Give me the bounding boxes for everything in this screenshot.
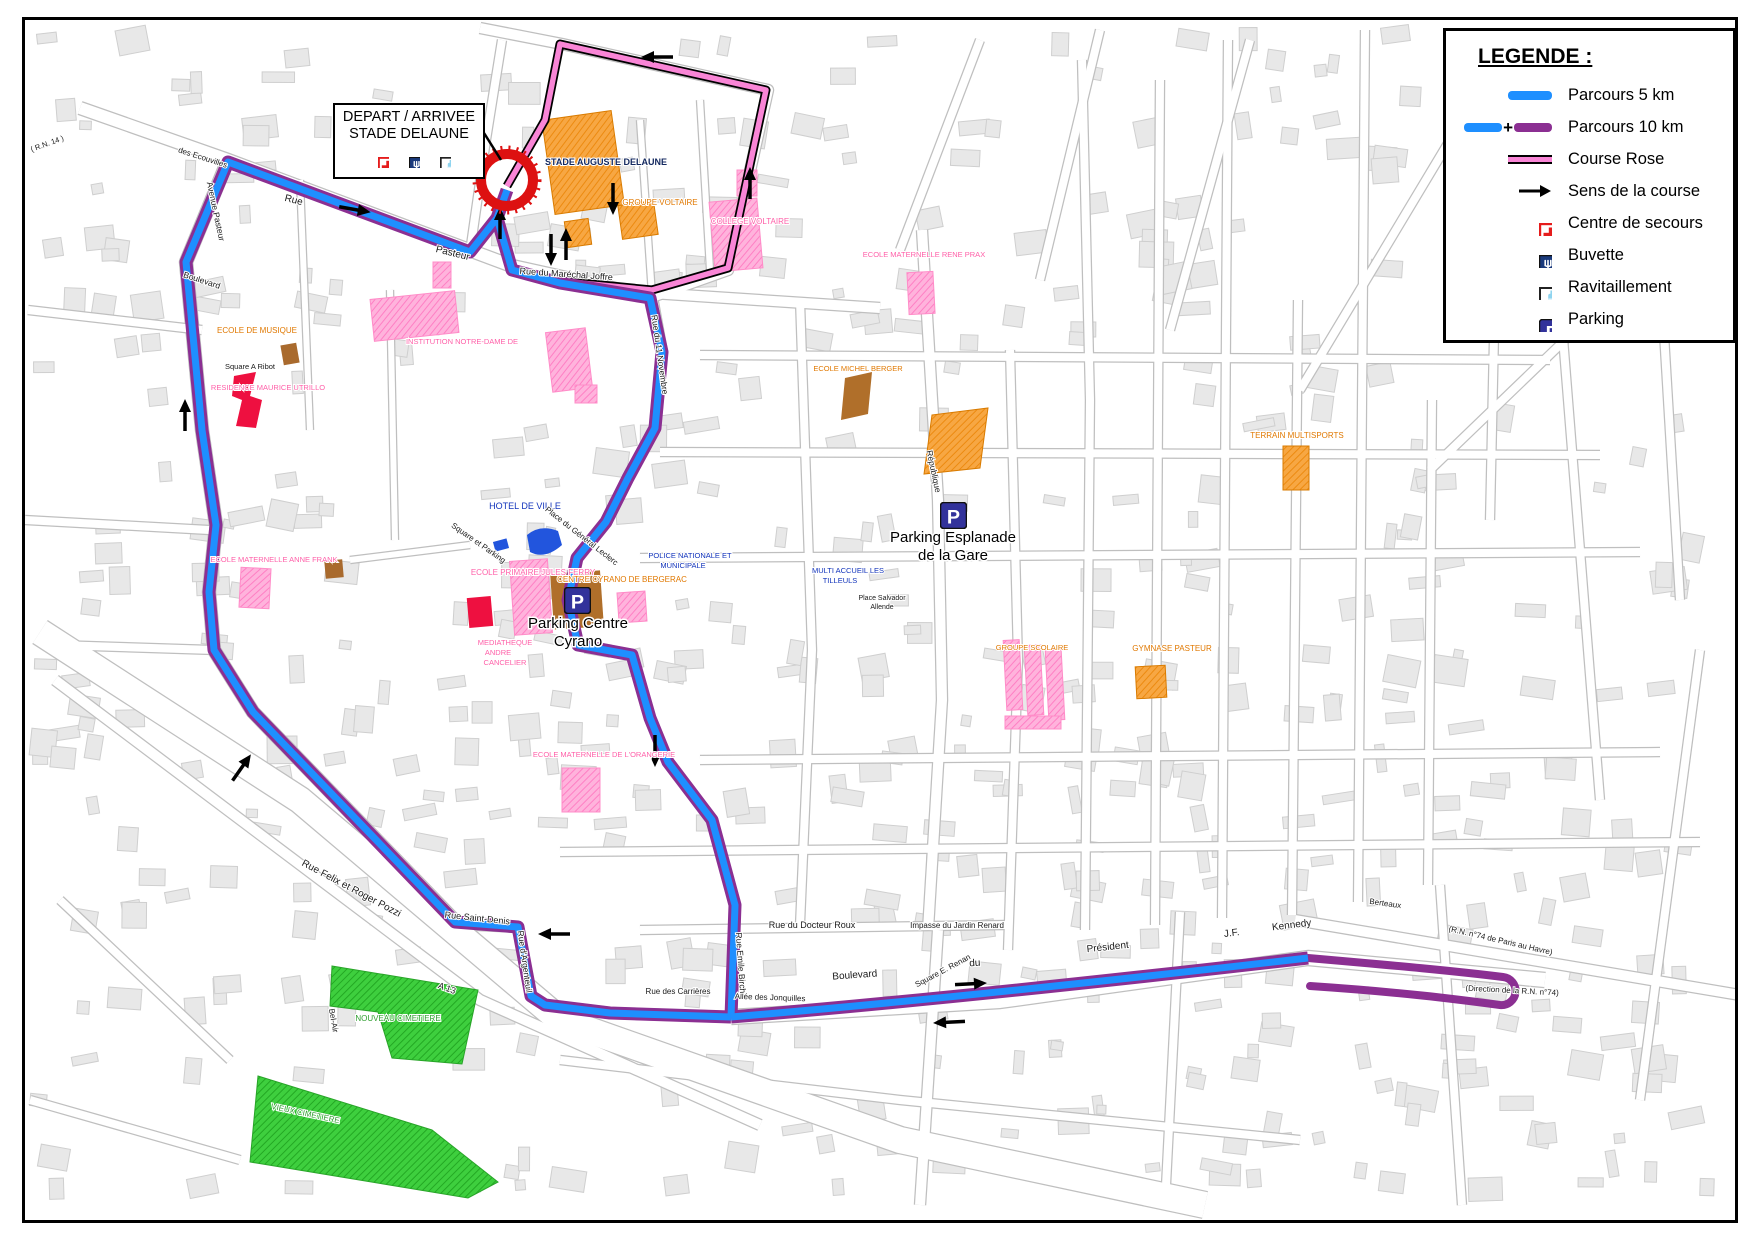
city-block	[635, 790, 661, 811]
legend-item-parcours-5km: Parcours 5 km	[1446, 79, 1733, 111]
map-label: ECOLE MATERNELLE DE L'ORANGERIE	[533, 750, 675, 759]
city-block	[107, 987, 142, 1010]
street	[1170, 40, 1250, 330]
city-block	[354, 706, 375, 733]
city-block	[864, 889, 900, 910]
city-block	[339, 640, 352, 650]
city-block	[1604, 845, 1634, 872]
city-block	[1270, 86, 1281, 102]
city-block	[1052, 33, 1069, 57]
gymnase-building	[1135, 665, 1167, 699]
city-block	[329, 279, 342, 295]
legend-item-ravitaillement: Ravitaillement	[1446, 271, 1733, 303]
city-block	[1560, 873, 1590, 902]
legend-box: LEGENDE : Parcours 5 km + Parcours 10 km…	[1443, 28, 1736, 343]
legend-label: Parcours 10 km	[1568, 118, 1684, 137]
city-block	[558, 722, 583, 743]
city-block	[50, 746, 76, 769]
street	[700, 752, 1660, 760]
city-block	[77, 1001, 90, 1015]
city-block	[1113, 494, 1139, 505]
city-block	[1572, 926, 1603, 947]
city-block	[1190, 804, 1208, 831]
city-block	[652, 460, 688, 488]
city-block	[817, 1134, 835, 1153]
city-block	[873, 824, 908, 843]
map-label: Boulevard	[832, 968, 878, 982]
city-block	[528, 654, 544, 678]
city-block	[1145, 1163, 1160, 1173]
city-block	[86, 796, 99, 815]
city-block	[159, 461, 172, 481]
street	[660, 452, 1600, 455]
city-block	[122, 902, 147, 928]
city-block	[1630, 447, 1647, 467]
city-block	[1194, 999, 1221, 1011]
city-block	[210, 866, 237, 888]
city-block	[1212, 943, 1222, 954]
utrillo-building	[232, 372, 262, 428]
city-block	[1003, 305, 1025, 328]
city-block	[139, 869, 165, 886]
city-block	[292, 911, 317, 940]
city-block	[1178, 771, 1206, 801]
city-block	[91, 183, 104, 195]
city-block	[1614, 1133, 1625, 1144]
city-block	[1326, 137, 1361, 159]
city-block	[36, 32, 57, 44]
map-labels-layer: RuePasteurAvenue PasteurBoulevarddes Eco…	[29, 133, 1559, 1125]
legend-label: Ravitaillement	[1568, 278, 1672, 297]
city-block	[1593, 482, 1606, 493]
city-block	[842, 152, 856, 165]
city-block	[1322, 791, 1357, 805]
city-block	[1497, 1013, 1519, 1032]
city-block	[164, 888, 190, 903]
city-block	[1405, 1103, 1421, 1126]
groupe-scolaire-buildings	[1003, 640, 1065, 729]
city-block	[832, 288, 844, 299]
ecole-annex-mid	[575, 385, 597, 403]
orangerie-building	[562, 768, 600, 812]
city-block	[489, 808, 511, 819]
city-block	[1323, 694, 1341, 721]
ravitaillement-icon	[1526, 274, 1552, 300]
city-block	[823, 125, 849, 141]
city-block	[1539, 898, 1556, 925]
terrain-multisports-building	[1283, 446, 1309, 490]
city-block	[538, 817, 567, 828]
map-label: ECOLE DE MUSIQUE	[217, 326, 297, 335]
city-block	[1043, 495, 1065, 506]
city-block	[115, 25, 150, 56]
city-block	[1700, 1178, 1715, 1195]
city-block	[294, 883, 312, 902]
sens-course-arrow	[538, 928, 570, 940]
stadium-annex-small	[564, 218, 591, 247]
map-label: Square A Ribot	[225, 362, 276, 371]
city-block	[795, 1027, 821, 1048]
city-block	[1464, 818, 1483, 836]
parking-icon-cyrano	[565, 588, 591, 614]
sens-course-arrow	[179, 399, 191, 431]
street	[1155, 80, 1160, 925]
city-block	[894, 318, 924, 334]
notre-dame-building	[370, 291, 459, 342]
city-block	[716, 362, 737, 375]
city-block	[393, 755, 420, 776]
city-block	[109, 567, 130, 595]
city-block	[1596, 687, 1622, 702]
city-block	[620, 425, 637, 448]
city-block	[481, 488, 510, 499]
buvette-icon	[398, 146, 420, 168]
plus-sign: +	[1503, 123, 1513, 132]
city-block	[285, 1181, 313, 1195]
map-label: Allée des Jonquilles	[735, 992, 806, 1003]
city-block	[718, 118, 736, 135]
city-block	[184, 1057, 202, 1084]
city-block	[982, 867, 1007, 893]
map-label: ECOLE MICHEL BERGER	[813, 364, 903, 373]
city-block	[509, 82, 541, 104]
map-label: GROUPE VOLTAIRE	[622, 198, 697, 207]
street	[25, 520, 209, 530]
city-block	[402, 803, 436, 821]
map-label: STADE AUGUSTE DELAUNE	[545, 157, 667, 167]
city-block	[514, 212, 551, 235]
city-block	[545, 478, 560, 488]
city-block	[148, 387, 168, 406]
city-block	[1375, 1078, 1393, 1093]
map-label: CENTRE CYRANO DE BERGERAC	[557, 575, 687, 584]
city-block	[1176, 28, 1209, 51]
swatch-5km-line	[1508, 91, 1552, 100]
map-label: COLLEGE VOLTAIRE	[711, 217, 789, 226]
city-block	[423, 790, 444, 802]
first-aid-icon	[1526, 210, 1552, 236]
ravitaillement-icon	[429, 146, 451, 168]
city-block	[221, 293, 240, 307]
city-block	[667, 666, 686, 682]
city-block	[594, 817, 627, 830]
city-block	[508, 713, 541, 741]
city-block	[246, 809, 257, 818]
map-label: ( R.N. 14 )	[29, 133, 65, 153]
city-block	[455, 787, 478, 801]
city-block	[56, 98, 77, 121]
city-block	[1431, 655, 1468, 687]
city-block	[1403, 783, 1419, 796]
city-block	[697, 482, 719, 497]
city-block	[262, 72, 294, 83]
city-block	[80, 121, 92, 130]
city-block	[453, 602, 469, 626]
city-block	[1200, 1158, 1233, 1175]
street	[350, 545, 470, 560]
city-block	[1313, 111, 1340, 129]
map-label: MEDIATHEQUE	[478, 638, 532, 647]
city-block	[49, 1178, 64, 1199]
city-block	[1187, 1072, 1206, 1089]
legend-label: Sens de la course	[1568, 182, 1700, 201]
city-block	[319, 503, 334, 516]
city-block	[1468, 1177, 1503, 1201]
buvette-icon	[1526, 242, 1552, 268]
city-block	[679, 39, 700, 58]
city-block	[281, 976, 303, 1004]
city-block	[1110, 780, 1136, 797]
ecole-musique-building	[280, 343, 299, 365]
city-block	[172, 79, 190, 91]
city-block	[464, 839, 485, 865]
city-block	[683, 948, 713, 971]
city-block	[1635, 850, 1663, 877]
city-block	[985, 119, 1001, 138]
city-block	[957, 854, 979, 877]
swatch-rose-line	[1508, 155, 1552, 164]
rene-prax-building	[907, 271, 935, 314]
city-block	[493, 437, 525, 458]
city-block	[606, 959, 625, 984]
legend-label: Parking	[1568, 310, 1624, 329]
city-block	[1435, 796, 1460, 811]
cemetery-old-area	[250, 1076, 498, 1198]
city-block	[81, 598, 101, 616]
city-block	[725, 1141, 759, 1173]
city-block	[472, 702, 492, 724]
city-block	[378, 680, 390, 704]
city-block	[732, 625, 746, 644]
city-block	[1668, 1106, 1705, 1130]
street	[28, 310, 202, 330]
first-aid-icon	[367, 146, 389, 168]
city-block	[294, 291, 327, 313]
city-block	[1470, 782, 1506, 800]
city-block	[1234, 112, 1252, 140]
start-finish-box: DEPART / ARRIVEE STADE DELAUNE	[333, 103, 485, 179]
city-block	[266, 499, 299, 532]
legend-item-parcours-10km: + Parcours 10 km	[1446, 111, 1733, 143]
city-block	[414, 833, 447, 853]
city-block	[95, 543, 122, 564]
city-block	[709, 602, 733, 623]
city-block	[228, 506, 265, 527]
city-block	[1561, 808, 1591, 837]
city-block	[190, 72, 202, 94]
city-block	[1246, 1169, 1261, 1188]
city-block	[1050, 1040, 1063, 1050]
street	[1082, 60, 1090, 930]
city-block	[1314, 64, 1327, 77]
city-block	[1140, 929, 1159, 949]
city-block	[1311, 855, 1334, 867]
city-block	[831, 787, 864, 807]
city-block	[551, 690, 572, 708]
city-block	[373, 89, 393, 101]
city-block	[1553, 1016, 1582, 1033]
city-block	[1381, 25, 1411, 45]
city-block	[1090, 610, 1114, 628]
city-block	[1266, 49, 1286, 71]
city-block	[1188, 512, 1197, 528]
city-block	[757, 174, 789, 188]
map-label: CANCELIER	[484, 658, 528, 667]
city-block	[1532, 999, 1550, 1012]
city-block	[791, 113, 825, 140]
legend-item-course-rose: Course Rose	[1446, 143, 1733, 175]
legend-label: Course Rose	[1568, 150, 1664, 169]
city-block	[186, 1174, 218, 1199]
city-block	[524, 424, 549, 442]
map-label: Impasse du Jardin Renard	[910, 921, 1004, 930]
city-block	[1021, 967, 1037, 980]
city-block	[1053, 286, 1078, 302]
city-block	[117, 827, 138, 852]
city-block	[289, 655, 305, 683]
city-block	[1184, 573, 1209, 591]
city-block	[1645, 1162, 1657, 1183]
map-label: NOUVEAU CIMETIERE	[355, 1014, 440, 1023]
city-block	[1354, 1162, 1367, 1179]
city-block	[42, 237, 63, 258]
city-block	[1001, 1128, 1019, 1138]
city-block	[759, 256, 786, 278]
parking-icon-esplanade	[941, 503, 967, 529]
map-label: Cyrano	[554, 633, 602, 650]
city-block	[683, 417, 719, 435]
map-label: GROUPE SCOLAIRE	[996, 643, 1069, 652]
city-block	[1197, 848, 1210, 873]
city-block	[1400, 86, 1422, 107]
city-block	[294, 514, 322, 528]
city-block	[324, 751, 346, 766]
city-block	[717, 36, 731, 56]
street	[560, 842, 1700, 852]
map-label: MUNICIPALE	[660, 561, 705, 570]
city-block	[861, 522, 873, 542]
city-block	[1248, 1044, 1259, 1058]
city-block	[1091, 662, 1113, 679]
legend-item-parking: Parking	[1446, 303, 1733, 335]
city-block	[239, 205, 250, 223]
city-block	[1068, 786, 1082, 814]
parking-icon	[1526, 306, 1552, 332]
city-block	[1391, 618, 1424, 641]
map-label: Parking Esplanade	[890, 529, 1016, 546]
city-block	[549, 1167, 587, 1193]
city-block	[34, 362, 55, 373]
city-block	[1605, 1150, 1619, 1178]
map-label: MULTI ACCUEIL LES	[812, 566, 884, 575]
map-label: Rue des Carrières	[646, 987, 711, 996]
city-block	[1382, 689, 1408, 703]
city-block	[284, 48, 310, 68]
city-block	[178, 93, 201, 106]
city-block	[546, 757, 559, 775]
city-block	[1467, 903, 1488, 930]
city-block	[739, 376, 762, 400]
street	[1428, 400, 1432, 885]
city-block	[950, 149, 980, 167]
legend-title: LEGENDE :	[1478, 45, 1733, 69]
course-map-page: P	[0, 0, 1755, 1240]
city-block	[1409, 576, 1441, 590]
map-label: RESIDENCE MAURICE UTRILLO	[211, 383, 325, 392]
city-block	[213, 975, 241, 994]
city-block	[974, 770, 1002, 782]
city-block	[1568, 1050, 1604, 1081]
city-block	[1578, 1178, 1603, 1187]
city-block	[1545, 757, 1576, 781]
city-block	[1366, 362, 1394, 388]
city-block	[516, 1033, 538, 1056]
city-block	[1535, 1122, 1557, 1144]
city-block	[78, 716, 95, 732]
city-block	[1600, 1033, 1635, 1051]
city-block	[37, 1144, 70, 1171]
city-block	[515, 242, 543, 253]
city-block	[1281, 127, 1299, 145]
city-block	[185, 160, 196, 180]
city-block	[79, 570, 103, 583]
city-block	[1355, 1043, 1371, 1069]
red-building-ferry	[467, 596, 494, 628]
city-block	[1383, 655, 1421, 688]
anne-frank-building	[239, 567, 271, 609]
city-block	[1282, 814, 1314, 828]
city-block	[1514, 872, 1526, 892]
map-label: de la Gare	[918, 547, 988, 564]
city-block	[1231, 1057, 1260, 1082]
city-block	[1061, 862, 1078, 889]
map-label: Place Salvador	[858, 595, 906, 602]
city-block	[944, 361, 961, 375]
map-label: ECOLE MATERNELLE RENE PRAX	[863, 250, 985, 259]
city-block	[763, 959, 796, 977]
city-block	[1378, 1171, 1405, 1194]
hotel-de-ville-pond	[527, 528, 562, 555]
city-block	[960, 335, 978, 351]
city-block	[1193, 384, 1216, 407]
start-finish-line2: STADE DELAUNE	[335, 126, 483, 143]
city-block	[437, 675, 465, 690]
map-label: TILLEULS	[823, 576, 858, 585]
city-block	[862, 675, 883, 697]
legend-label: Buvette	[1568, 246, 1624, 265]
city-block	[84, 734, 103, 760]
swatch-10km-line: +	[1446, 123, 1568, 132]
city-block	[1327, 54, 1339, 73]
city-block	[515, 1180, 526, 1191]
city-block	[71, 1052, 98, 1066]
city-block	[1013, 1050, 1024, 1074]
city-block	[1515, 603, 1546, 617]
start-finish-line1: DEPART / ARRIVEE	[335, 109, 483, 126]
city-block	[141, 333, 161, 352]
city-block	[1311, 394, 1334, 422]
map-label: GYMNASE PASTEUR	[1132, 644, 1212, 653]
map-label: J.F.	[1223, 927, 1240, 940]
notre-dame-annex	[433, 262, 451, 288]
legend-item-centre-secours: Centre de secours	[1446, 207, 1733, 239]
city-block	[34, 659, 56, 670]
city-block	[275, 472, 297, 488]
city-block	[961, 715, 972, 727]
map-label: POLICE NATIONALE ET	[648, 551, 732, 560]
city-block	[504, 1164, 520, 1179]
map-label: ECOLE MATERNELLE ANNE FRANK	[211, 555, 338, 564]
